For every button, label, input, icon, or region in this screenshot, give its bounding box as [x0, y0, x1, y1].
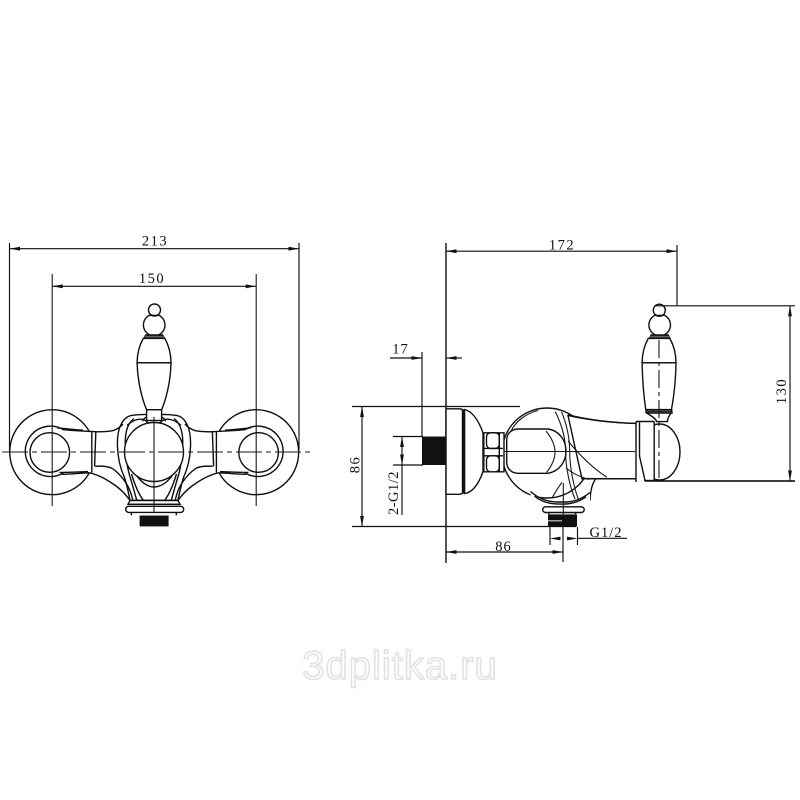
- svg-text:17: 17: [392, 341, 409, 357]
- svg-text:G1/2: G1/2: [590, 525, 623, 541]
- svg-text:150: 150: [139, 271, 165, 287]
- svg-text:2-G1/2: 2-G1/2: [386, 471, 402, 515]
- svg-text:172: 172: [549, 237, 575, 253]
- svg-text:3dplitka.ru: 3dplitka.ru: [302, 644, 498, 688]
- svg-text:130: 130: [774, 378, 790, 404]
- svg-text:86: 86: [348, 456, 364, 474]
- svg-text:86: 86: [495, 539, 512, 555]
- svg-text:213: 213: [142, 234, 168, 250]
